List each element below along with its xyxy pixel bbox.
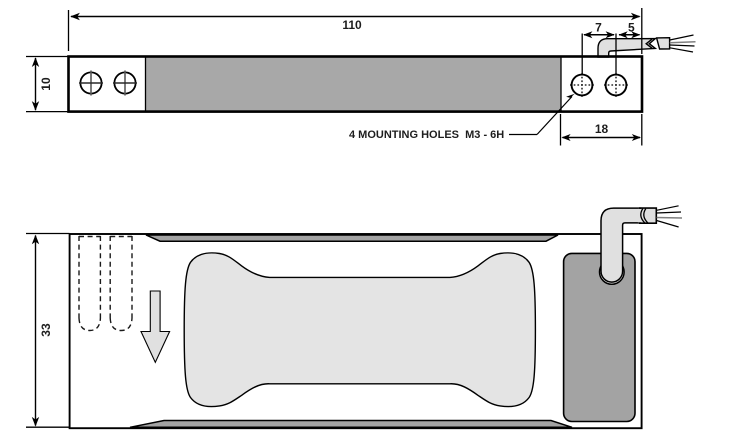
svg-text:5: 5 [628, 20, 635, 34]
svg-text:18: 18 [595, 122, 609, 136]
svg-text:110: 110 [342, 18, 362, 32]
svg-text:33: 33 [39, 323, 53, 337]
svg-text:10: 10 [39, 77, 53, 91]
svg-text:7: 7 [595, 20, 602, 34]
svg-text:4 MOUNTING HOLES M3 - 6H: 4 MOUNTING HOLES M3 - 6H [349, 129, 504, 141]
